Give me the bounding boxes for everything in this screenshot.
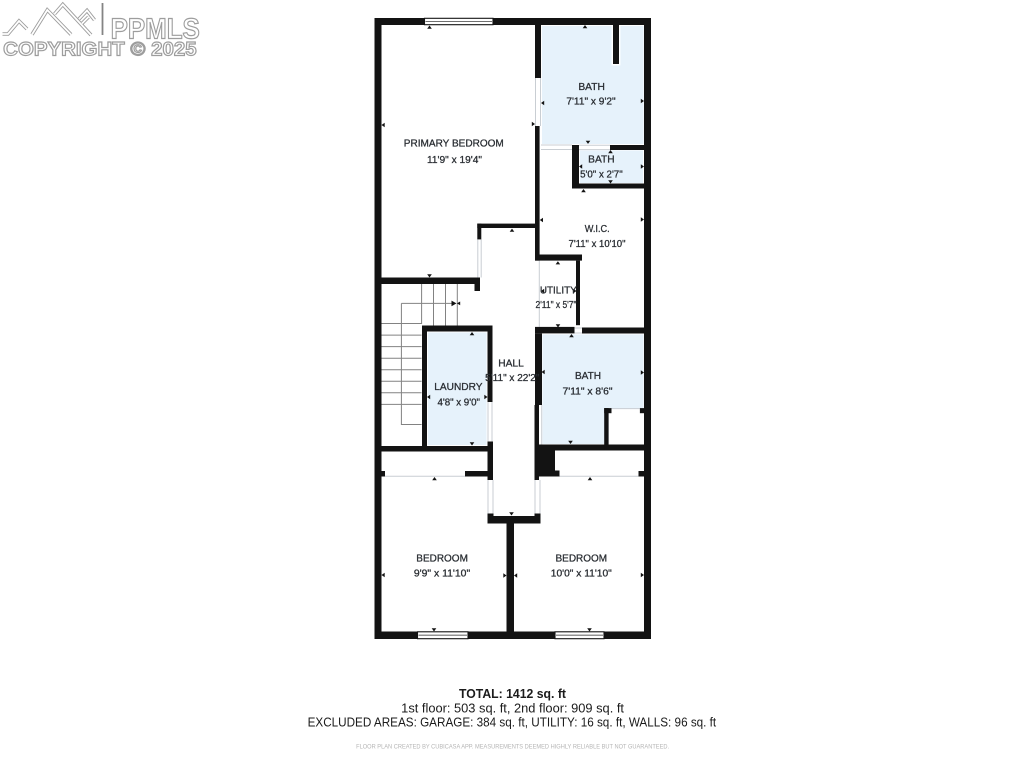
svg-text:7'11" x 9'2": 7'11" x 9'2": [566, 97, 616, 108]
svg-text:BATH: BATH: [588, 154, 615, 166]
svg-text:11'9" x 19'4": 11'9" x 19'4": [427, 155, 482, 166]
svg-text:BEDROOM: BEDROOM: [416, 553, 468, 565]
svg-text:10'0" x 11'10": 10'0" x 11'10": [551, 569, 612, 580]
svg-text:2'11" x 5'7": 2'11" x 5'7": [536, 300, 577, 311]
svg-text:EXCLUDED AREAS: GARAGE: 384 sq: EXCLUDED AREAS: GARAGE: 384 sq. ft, UTIL…: [308, 715, 717, 729]
svg-text:7'11" x 8'6": 7'11" x 8'6": [563, 387, 613, 398]
svg-text:9'9" x 11'10": 9'9" x 11'10": [414, 569, 471, 580]
svg-text:HALL: HALL: [498, 358, 524, 370]
svg-text:BATH: BATH: [575, 370, 601, 382]
svg-text:TOTAL: 1412 sq. ft: TOTAL: 1412 sq. ft: [459, 687, 567, 701]
svg-text:FLOOR PLAN CREATED BY CUBICASA: FLOOR PLAN CREATED BY CUBICASA APP. MEAS…: [356, 743, 669, 750]
svg-text:PRIMARY BEDROOM: PRIMARY BEDROOM: [404, 137, 504, 149]
svg-text:7'11" x 10'10": 7'11" x 10'10": [569, 239, 626, 250]
svg-text:W.I.C.: W.I.C.: [585, 223, 610, 235]
svg-text:UTILITY: UTILITY: [540, 284, 577, 296]
svg-text:BEDROOM: BEDROOM: [556, 553, 608, 565]
svg-text:4'8" x 9'0": 4'8" x 9'0": [437, 398, 480, 409]
svg-text:COPYRIGHT © 2025: COPYRIGHT © 2025: [3, 39, 197, 60]
svg-text:1st floor: 503 sq. ft, 2nd flo: 1st floor: 503 sq. ft, 2nd floor: 909 sq…: [401, 701, 624, 715]
svg-text:5'0" x 2'7": 5'0" x 2'7": [580, 169, 623, 180]
svg-text:5'11" x 22'2": 5'11" x 22'2": [485, 373, 540, 384]
svg-text:BATH: BATH: [578, 81, 605, 93]
svg-text:LAUNDRY: LAUNDRY: [434, 381, 482, 393]
